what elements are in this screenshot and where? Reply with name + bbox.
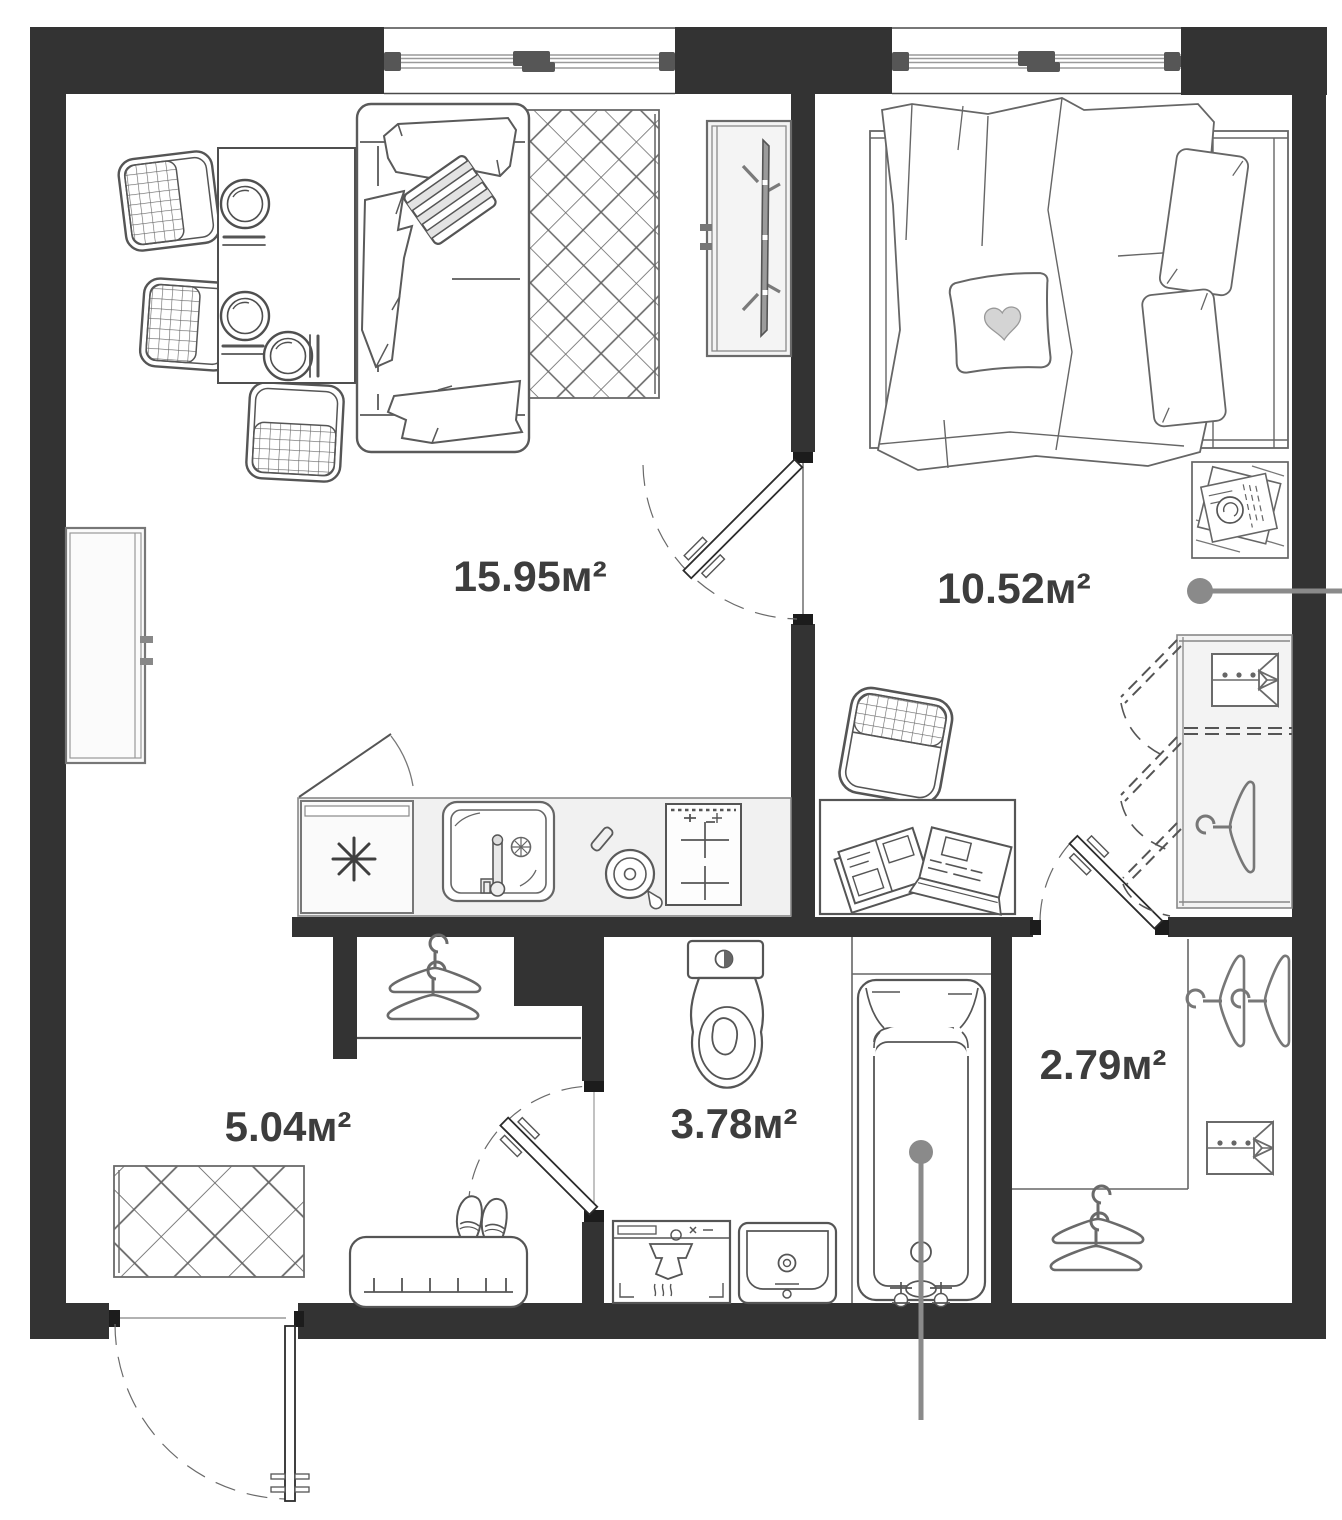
svg-text:10.52м²: 10.52м² [937, 565, 1091, 613]
svg-text:2.79м²: 2.79м² [1040, 1041, 1167, 1088]
svg-text:3.78м²: 3.78м² [671, 1100, 798, 1147]
svg-text:15.95м²: 15.95м² [453, 553, 607, 601]
svg-text:5.04м²: 5.04м² [225, 1103, 352, 1150]
